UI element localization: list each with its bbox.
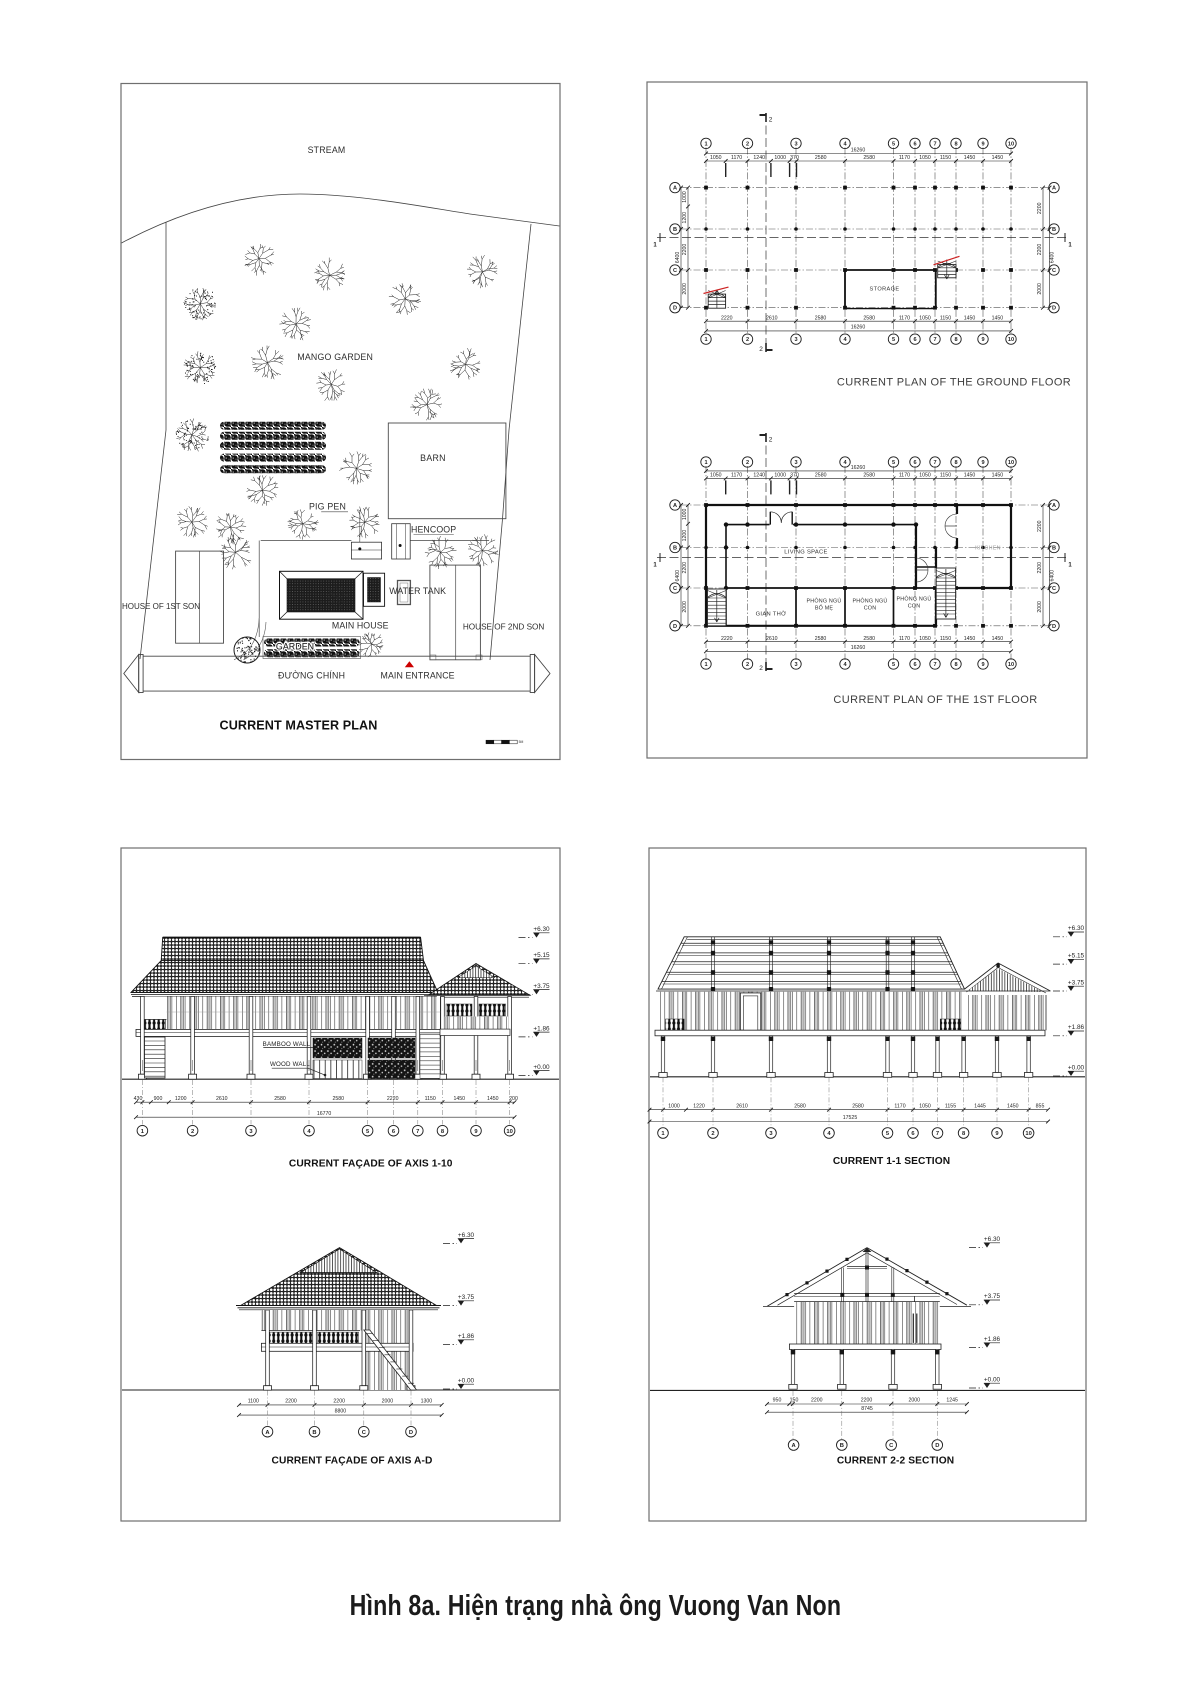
svg-text:150: 150 [790,1398,799,1404]
svg-text:BARN: BARN [420,453,446,463]
svg-text:6: 6 [913,141,916,147]
svg-text:2610: 2610 [766,315,778,321]
svg-text:2: 2 [759,665,763,672]
svg-text:CON: CON [864,606,877,612]
svg-text:1150: 1150 [425,1096,436,1102]
svg-text:+1.86: +1.86 [984,1336,1001,1343]
svg-text:PHÒNG NGỦ: PHÒNG NGỦ [896,596,931,603]
svg-text:1170: 1170 [731,155,742,161]
svg-text:16260: 16260 [851,325,866,331]
svg-text:2200: 2200 [285,1399,297,1405]
svg-text:+6.30: +6.30 [458,1232,475,1239]
svg-text:+1.86: +1.86 [458,1333,475,1340]
svg-text:16260: 16260 [851,148,866,154]
svg-text:1050: 1050 [919,315,931,321]
svg-text:1050: 1050 [919,155,931,161]
svg-text:16770: 16770 [317,1111,332,1117]
svg-text:9: 9 [981,141,984,147]
svg-text:CURRENT 2-2 SECTION: CURRENT 2-2 SECTION [837,1456,954,1467]
svg-text:D: D [935,1443,939,1449]
svg-text:370: 370 [790,473,799,479]
svg-text:6: 6 [913,337,916,343]
svg-text:10: 10 [1025,1131,1031,1137]
svg-text:+6.30: +6.30 [984,1236,1001,1243]
svg-text:6400: 6400 [1050,252,1056,264]
svg-text:10: 10 [506,1129,512,1135]
svg-text:3: 3 [794,141,797,147]
svg-text:+3.75: +3.75 [1068,979,1085,986]
svg-text:A: A [673,186,677,192]
svg-text:7: 7 [933,662,936,668]
svg-text:BAMBOO WALL: BAMBOO WALL [263,1041,311,1048]
svg-text:7: 7 [936,1131,939,1137]
svg-text:5: 5 [892,337,895,343]
svg-text:STORAGE: STORAGE [869,287,899,293]
svg-text:ĐƯỜNG CHÍNH: ĐƯỜNG CHÍNH [278,671,345,681]
svg-text:BỐ MẸ: BỐ MẸ [815,605,834,612]
svg-text:2200: 2200 [682,562,688,574]
svg-text:2: 2 [746,337,749,343]
svg-text:1170: 1170 [894,1103,905,1109]
svg-text:5: 5 [892,141,895,147]
svg-text:6400: 6400 [1050,570,1056,582]
svg-text:2000: 2000 [1037,283,1043,295]
svg-text:10: 10 [1008,460,1014,466]
svg-text:2610: 2610 [216,1096,228,1102]
svg-text:1050: 1050 [710,473,722,479]
svg-text:2220: 2220 [721,315,733,321]
svg-text:MAIN ENTRANCE: MAIN ENTRANCE [381,671,455,681]
svg-text:2000: 2000 [682,283,688,295]
svg-text:B: B [840,1443,844,1449]
svg-text:7: 7 [933,141,936,147]
svg-text:1170: 1170 [899,636,910,642]
svg-text:1200: 1200 [175,1096,187,1102]
svg-text:1220: 1220 [693,1103,705,1109]
svg-text:8: 8 [954,337,957,343]
svg-text:2: 2 [769,117,773,124]
svg-text:2220: 2220 [387,1096,399,1102]
svg-text:2220: 2220 [721,636,733,642]
svg-text:B: B [1052,546,1056,552]
svg-text:8745: 8745 [861,1406,873,1412]
svg-text:2: 2 [769,437,773,444]
svg-text:KITCHEN: KITCHEN [975,546,1001,552]
svg-text:CURRENT 1-1 SECTION: CURRENT 1-1 SECTION [833,1156,950,1167]
svg-text:2: 2 [746,662,749,668]
svg-text:3: 3 [794,460,797,466]
svg-text:1170: 1170 [899,155,910,161]
svg-text:1245: 1245 [946,1398,958,1404]
svg-text:2580: 2580 [863,473,875,479]
svg-text:2580: 2580 [815,315,827,321]
svg-text:2580: 2580 [815,473,827,479]
svg-text:1450: 1450 [964,155,976,161]
svg-text:1200: 1200 [682,212,688,224]
svg-text:2200: 2200 [861,1398,873,1404]
svg-text:+0.00: +0.00 [984,1376,1001,1383]
svg-text:16260: 16260 [851,645,866,651]
svg-text:2000: 2000 [909,1398,921,1404]
svg-text:MAIN HOUSE: MAIN HOUSE [332,621,389,631]
svg-text:1150: 1150 [940,473,951,479]
svg-text:2200: 2200 [1037,244,1043,256]
svg-text:A: A [673,503,677,509]
svg-text:1450: 1450 [964,473,976,479]
svg-text:D: D [1052,306,1056,312]
svg-text:B: B [1052,227,1056,233]
svg-text:1000: 1000 [682,191,688,203]
svg-text:+3.75: +3.75 [533,983,550,990]
svg-text:10: 10 [1008,662,1014,668]
svg-text:HOUSE OF 2ND SON: HOUSE OF 2ND SON [463,623,545,632]
svg-text:6400: 6400 [675,570,681,582]
svg-text:1050: 1050 [919,1103,931,1109]
svg-text:1450: 1450 [487,1096,499,1102]
svg-text:1: 1 [704,662,707,668]
svg-text:1170: 1170 [899,315,910,321]
svg-text:3: 3 [794,662,797,668]
svg-text:D: D [673,624,677,630]
svg-text:1000: 1000 [774,155,786,161]
svg-text:+6.30: +6.30 [533,926,550,933]
svg-text:1450: 1450 [964,636,976,642]
svg-text:1450: 1450 [992,315,1004,321]
svg-text:2000: 2000 [382,1399,394,1405]
svg-text:9: 9 [981,337,984,343]
svg-text:8: 8 [954,141,957,147]
svg-text:+6.30: +6.30 [1068,925,1085,932]
svg-text:+0.00: +0.00 [458,1377,475,1384]
svg-text:2: 2 [191,1129,194,1135]
svg-text:10: 10 [1008,337,1014,343]
svg-text:3: 3 [794,337,797,343]
svg-text:1450: 1450 [964,315,976,321]
svg-text:7: 7 [416,1129,419,1135]
svg-text:2580: 2580 [333,1096,345,1102]
svg-text:1450: 1450 [992,155,1004,161]
svg-text:6400: 6400 [675,252,681,264]
svg-text:1150: 1150 [940,315,951,321]
svg-text:+0.00: +0.00 [533,1064,550,1071]
svg-text:370: 370 [790,155,799,161]
svg-text:2580: 2580 [815,636,827,642]
svg-text:950: 950 [773,1398,782,1404]
svg-text:2200: 2200 [811,1398,823,1404]
svg-text:+1.86: +1.86 [533,1025,550,1032]
svg-text:1: 1 [704,460,707,466]
svg-text:+5.15: +5.15 [1068,953,1085,960]
svg-text:1200: 1200 [682,530,688,542]
svg-text:PHÒNG NGỦ: PHÒNG NGỦ [852,598,887,605]
svg-text:PIG PEN: PIG PEN [309,502,346,512]
svg-text:1170: 1170 [899,473,910,479]
svg-text:6: 6 [913,662,916,668]
svg-text:GIAN THỜ: GIAN THỜ [756,611,787,618]
svg-text:CURRENT FAÇADE OF AXIS 1-10: CURRENT FAÇADE OF AXIS 1-10 [289,1159,453,1170]
svg-text:CURRENT PLAN OF THE 1ST FLOOR: CURRENT PLAN OF THE 1ST FLOOR [833,694,1037,706]
svg-text:2: 2 [746,460,749,466]
svg-text:+0.00: +0.00 [1068,1064,1085,1071]
svg-text:2610: 2610 [766,636,778,642]
svg-text:PHÒNG NGỦ: PHÒNG NGỦ [806,598,841,605]
svg-text:1240: 1240 [753,155,765,161]
svg-text:10: 10 [1008,141,1014,147]
svg-text:1155: 1155 [945,1103,956,1109]
svg-text:1450: 1450 [1007,1103,1019,1109]
svg-text:7: 7 [933,460,936,466]
svg-text:GARDEN: GARDEN [276,642,314,652]
svg-text:7: 7 [933,337,936,343]
svg-text:1: 1 [704,141,707,147]
svg-text:STREAM: STREAM [308,145,346,155]
svg-text:2000: 2000 [1037,601,1043,613]
svg-text:D: D [409,1430,413,1436]
svg-text:D: D [673,306,677,312]
svg-text:5: 5 [892,460,895,466]
svg-text:2: 2 [711,1131,714,1137]
svg-text:CURRENT FAÇADE OF AXIS A-D: CURRENT FAÇADE OF AXIS A-D [272,1456,433,1467]
svg-text:1050: 1050 [919,473,931,479]
svg-text:1100: 1100 [248,1399,259,1405]
svg-text:C: C [673,268,677,274]
svg-text:B: B [312,1430,316,1436]
svg-text:A: A [1052,503,1056,509]
svg-text:+3.75: +3.75 [458,1294,475,1301]
svg-text:HOUSE OF 1ST SON: HOUSE OF 1ST SON [122,602,200,611]
svg-text:8: 8 [954,460,957,466]
svg-text:1445: 1445 [974,1103,986,1109]
svg-text:855: 855 [1036,1103,1045,1109]
svg-text:1050: 1050 [710,155,722,161]
svg-text:B: B [673,546,677,552]
svg-text:1000: 1000 [774,473,786,479]
svg-text:1240: 1240 [753,473,765,479]
svg-text:2580: 2580 [274,1096,286,1102]
svg-text:9: 9 [981,460,984,466]
svg-text:WATER TANK: WATER TANK [389,586,446,596]
svg-text:2580: 2580 [794,1103,806,1109]
svg-text:2200: 2200 [1037,202,1043,214]
svg-text:1300: 1300 [421,1399,433,1405]
svg-text:16260: 16260 [851,465,866,471]
svg-text:1: 1 [704,337,707,343]
svg-text:2: 2 [759,346,763,353]
svg-text:1450: 1450 [992,636,1004,642]
svg-text:5: 5 [892,662,895,668]
svg-text:HENCOOP: HENCOOP [411,525,456,535]
svg-text:5M: 5M [519,740,524,744]
svg-text:17525: 17525 [843,1115,858,1121]
svg-text:2000: 2000 [682,601,688,613]
svg-text:8: 8 [954,662,957,668]
svg-text:2200: 2200 [682,244,688,256]
svg-text:1150: 1150 [940,155,951,161]
svg-text:B: B [673,227,677,233]
svg-text:D: D [1052,624,1056,630]
svg-text:2580: 2580 [863,155,875,161]
svg-text:LIVING SPACE: LIVING SPACE [784,550,827,556]
svg-text:2200: 2200 [333,1399,345,1405]
svg-text:6: 6 [913,460,916,466]
svg-text:+3.75: +3.75 [984,1293,1001,1300]
svg-text:2580: 2580 [863,636,875,642]
svg-text:2200: 2200 [1037,520,1043,532]
svg-text:2580: 2580 [852,1103,864,1109]
svg-text:+5.15: +5.15 [533,952,550,959]
svg-text:8800: 8800 [335,1409,347,1415]
svg-text:430: 430 [134,1096,143,1102]
svg-text:9: 9 [981,662,984,668]
svg-text:2200: 2200 [1037,562,1043,574]
svg-text:A: A [1052,186,1056,192]
svg-text:1050: 1050 [919,636,931,642]
svg-text:2580: 2580 [815,155,827,161]
svg-text:CURRENT MASTER PLAN: CURRENT MASTER PLAN [220,719,378,733]
svg-text:900: 900 [154,1096,163,1102]
svg-text:C: C [1052,586,1056,592]
svg-text:CURRENT PLAN OF THE GROUND FLO: CURRENT PLAN OF THE GROUND FLOOR [837,377,1071,389]
svg-text:CON: CON [908,604,921,610]
svg-text:+1.86: +1.86 [1068,1024,1085,1031]
svg-text:1000: 1000 [668,1103,680,1109]
svg-text:1000: 1000 [682,509,688,521]
svg-text:1150: 1150 [940,636,951,642]
svg-text:1450: 1450 [454,1096,466,1102]
svg-text:C: C [673,586,677,592]
svg-text:C: C [1052,268,1056,274]
svg-text:MANGO GARDEN: MANGO GARDEN [297,352,373,362]
svg-text:1450: 1450 [992,473,1004,479]
svg-text:2610: 2610 [736,1103,748,1109]
svg-text:200: 200 [509,1096,518,1102]
svg-text:2: 2 [746,141,749,147]
svg-text:2580: 2580 [863,315,875,321]
svg-text:WOOD WALL: WOOD WALL [270,1061,310,1068]
svg-text:1170: 1170 [731,473,742,479]
